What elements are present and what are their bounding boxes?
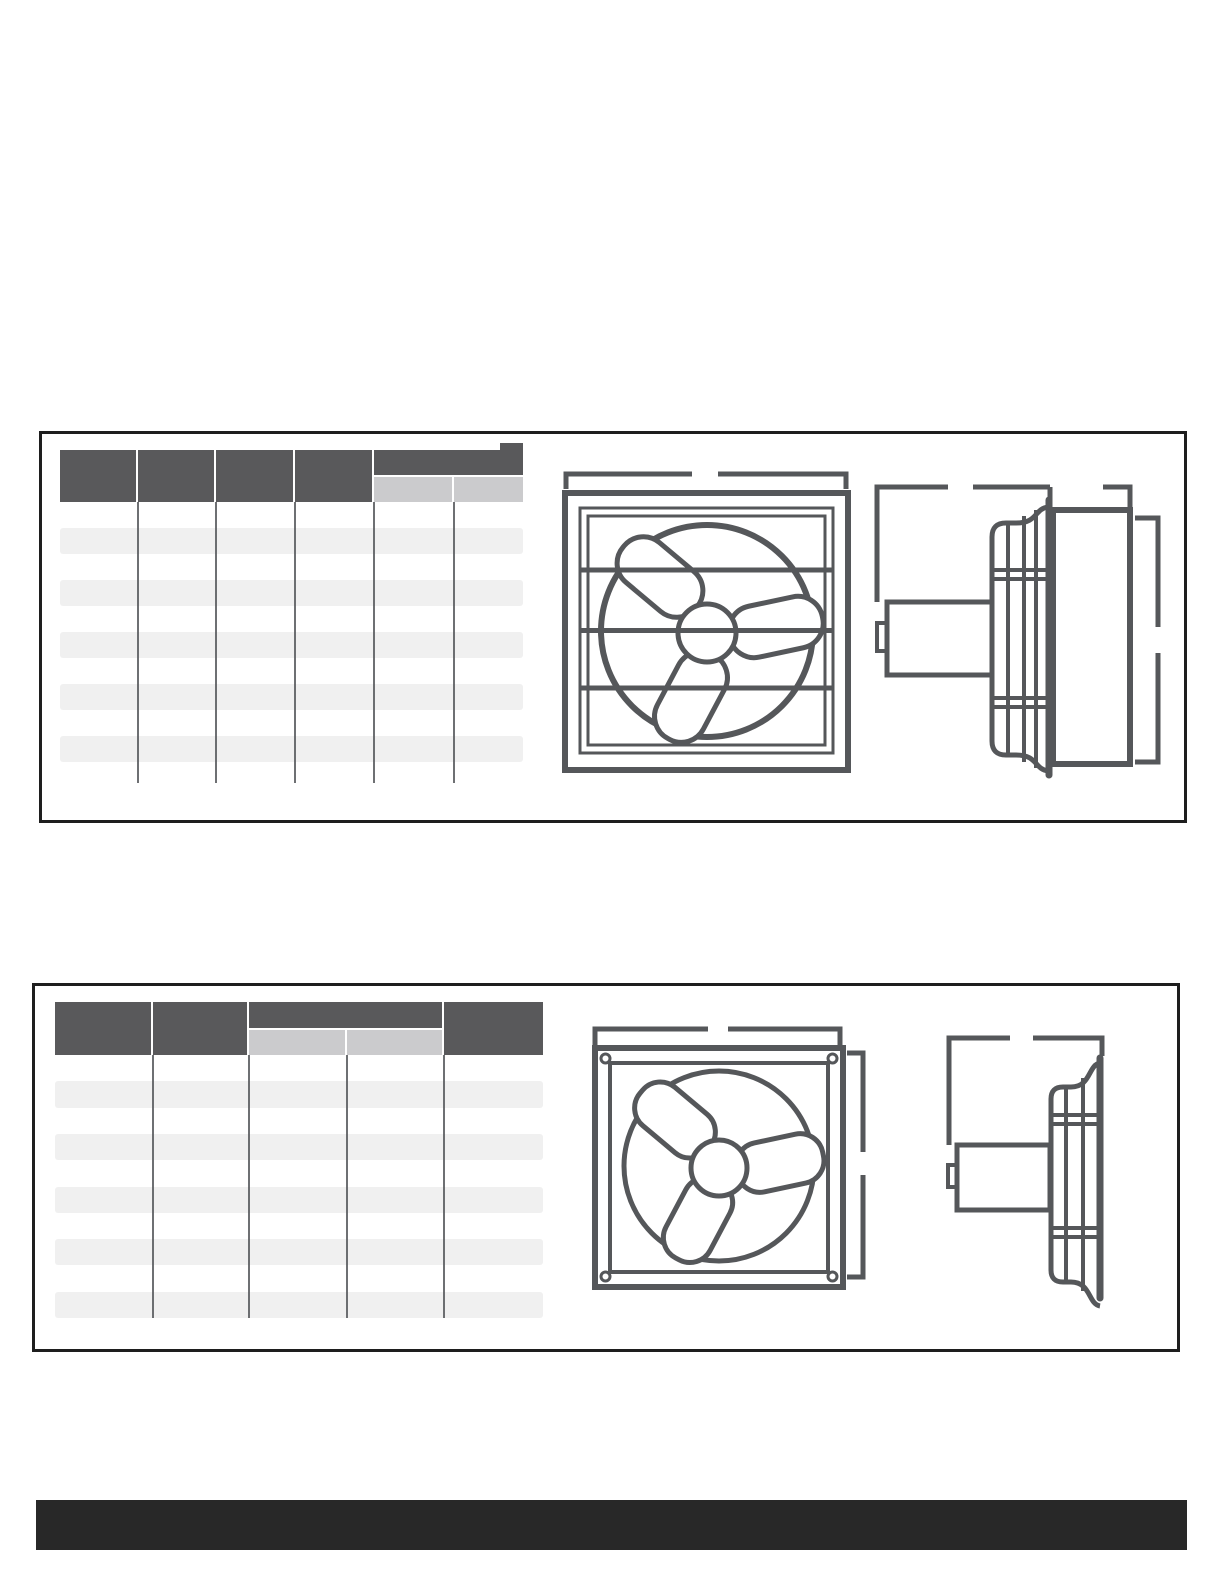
footer-brand-bar [36, 1500, 1187, 1550]
fan-hub [691, 1140, 747, 1196]
table-row [55, 1081, 543, 1107]
panel-2-drawings [560, 983, 1180, 1352]
column-divider [443, 1055, 445, 1318]
column-divider [373, 502, 375, 783]
header-cell [374, 450, 523, 475]
shutter-exhaust-fan-front-view [565, 474, 848, 770]
table-row [55, 1134, 543, 1160]
header-cell [249, 1002, 442, 1028]
column-divider [453, 502, 455, 783]
column-divider [294, 502, 296, 783]
subheader-cell [347, 1030, 442, 1055]
motor-housing [887, 602, 992, 675]
subheader-cell [249, 1030, 345, 1055]
venturi-outline [992, 507, 1048, 771]
table-row [55, 1292, 543, 1318]
panel-1-drawings [540, 431, 1188, 823]
depth-dimension-line [949, 1038, 1102, 1145]
header-cell [444, 1002, 543, 1055]
column-divider [215, 502, 217, 783]
motor-housing [957, 1145, 1050, 1210]
subheader-cell [454, 477, 523, 502]
header-cell [153, 1002, 247, 1055]
column-divider [137, 502, 139, 783]
column-divider [248, 1055, 250, 1318]
subheader-cell [374, 477, 452, 502]
plate-mount-fan-side-view [948, 1038, 1102, 1306]
width-dimension-line [595, 1029, 840, 1045]
column-divider [346, 1055, 348, 1318]
header-tab [500, 443, 523, 451]
table-row [55, 1187, 543, 1213]
venturi-ribs [1066, 1078, 1083, 1291]
column-divider [152, 1055, 154, 1318]
header-cell [55, 1002, 151, 1055]
table-row [55, 1239, 543, 1265]
venturi-ribs [1008, 510, 1036, 768]
venturi-outline [1051, 1063, 1100, 1306]
spec-table-1 [60, 450, 523, 783]
plate-mount-fan-front-view [595, 1029, 863, 1287]
header-cell [295, 450, 372, 502]
venturi-crossbars [1051, 1115, 1098, 1237]
header-cell [216, 450, 293, 502]
height-dimension-bracket [847, 1053, 863, 1277]
housing-depth-rect [1053, 510, 1130, 764]
width-dimension-line [566, 474, 846, 489]
header-cell [60, 450, 136, 502]
spec-table-2 [55, 1002, 543, 1318]
shutter-exhaust-fan-side-view [877, 487, 1158, 775]
height-dimension-bracket [1135, 518, 1158, 762]
depth-dimension-line [877, 487, 1130, 602]
header-cell [138, 450, 214, 502]
